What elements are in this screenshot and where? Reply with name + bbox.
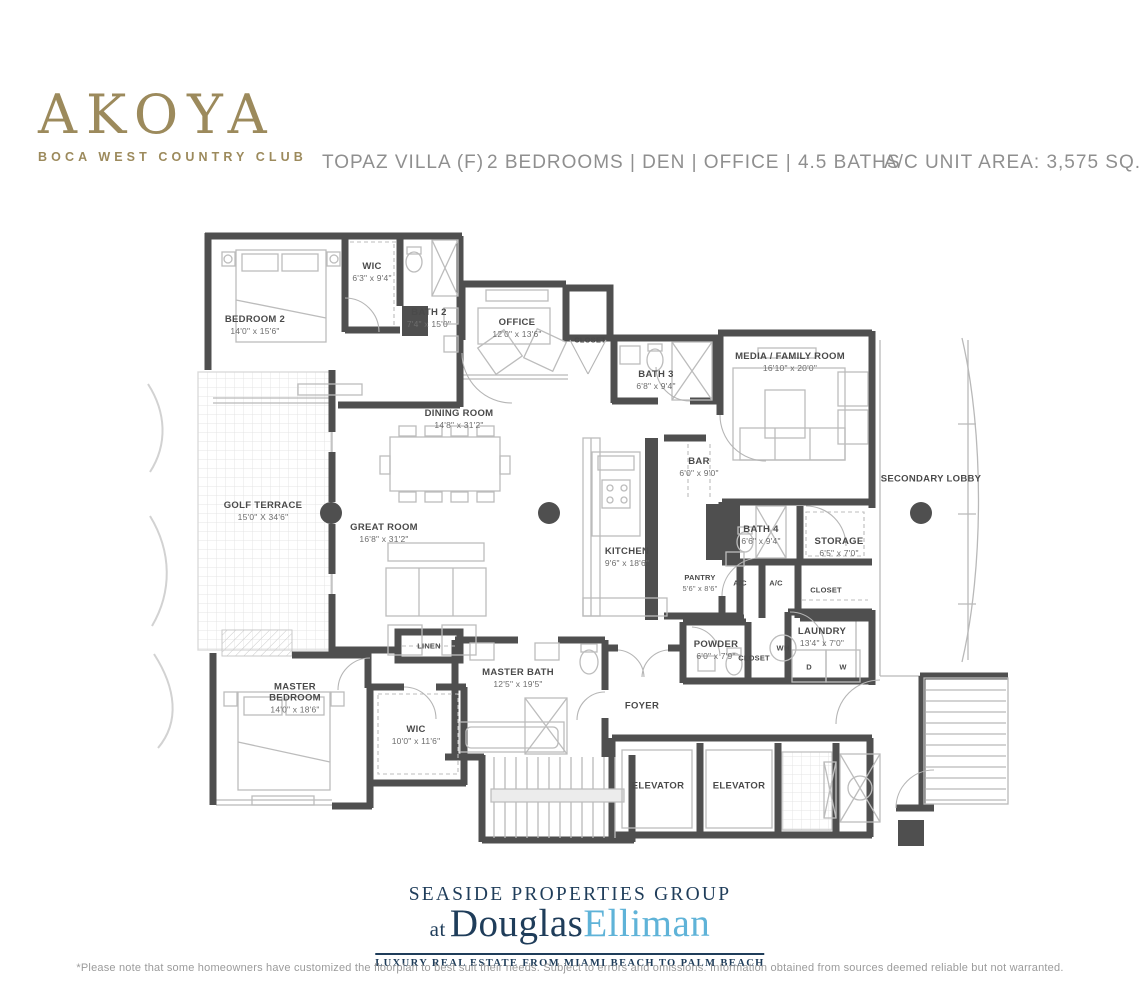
- column: [910, 502, 932, 524]
- brand-rule: [375, 953, 764, 955]
- brand-at: at: [430, 917, 446, 941]
- broker-brand: at DouglasElliman: [375, 904, 764, 952]
- landscape-arcs: [148, 384, 173, 748]
- floorplan-page: AKOYA BOCA WEST COUNTRY CLUB TOPAZ VILLA…: [0, 0, 1140, 986]
- column: [320, 502, 342, 524]
- disclaimer-text: *Please note that some homeowners have c…: [76, 962, 1063, 974]
- stairs: [491, 678, 1008, 838]
- floorplan-svg: [0, 0, 1140, 986]
- elevators: [622, 750, 880, 830]
- brand-elliman: Elliman: [583, 902, 710, 945]
- floorplan-drawing: BEDROOM 214'0" x 15'6"WIC6'3" x 9'4"BATH…: [0, 0, 1140, 986]
- golf-terrace-deck: [198, 372, 331, 656]
- column: [538, 502, 560, 524]
- broker-logo: SEASIDE PROPERTIES GROUP at DouglasEllim…: [375, 884, 764, 969]
- brand-douglas: Douglas: [450, 902, 584, 945]
